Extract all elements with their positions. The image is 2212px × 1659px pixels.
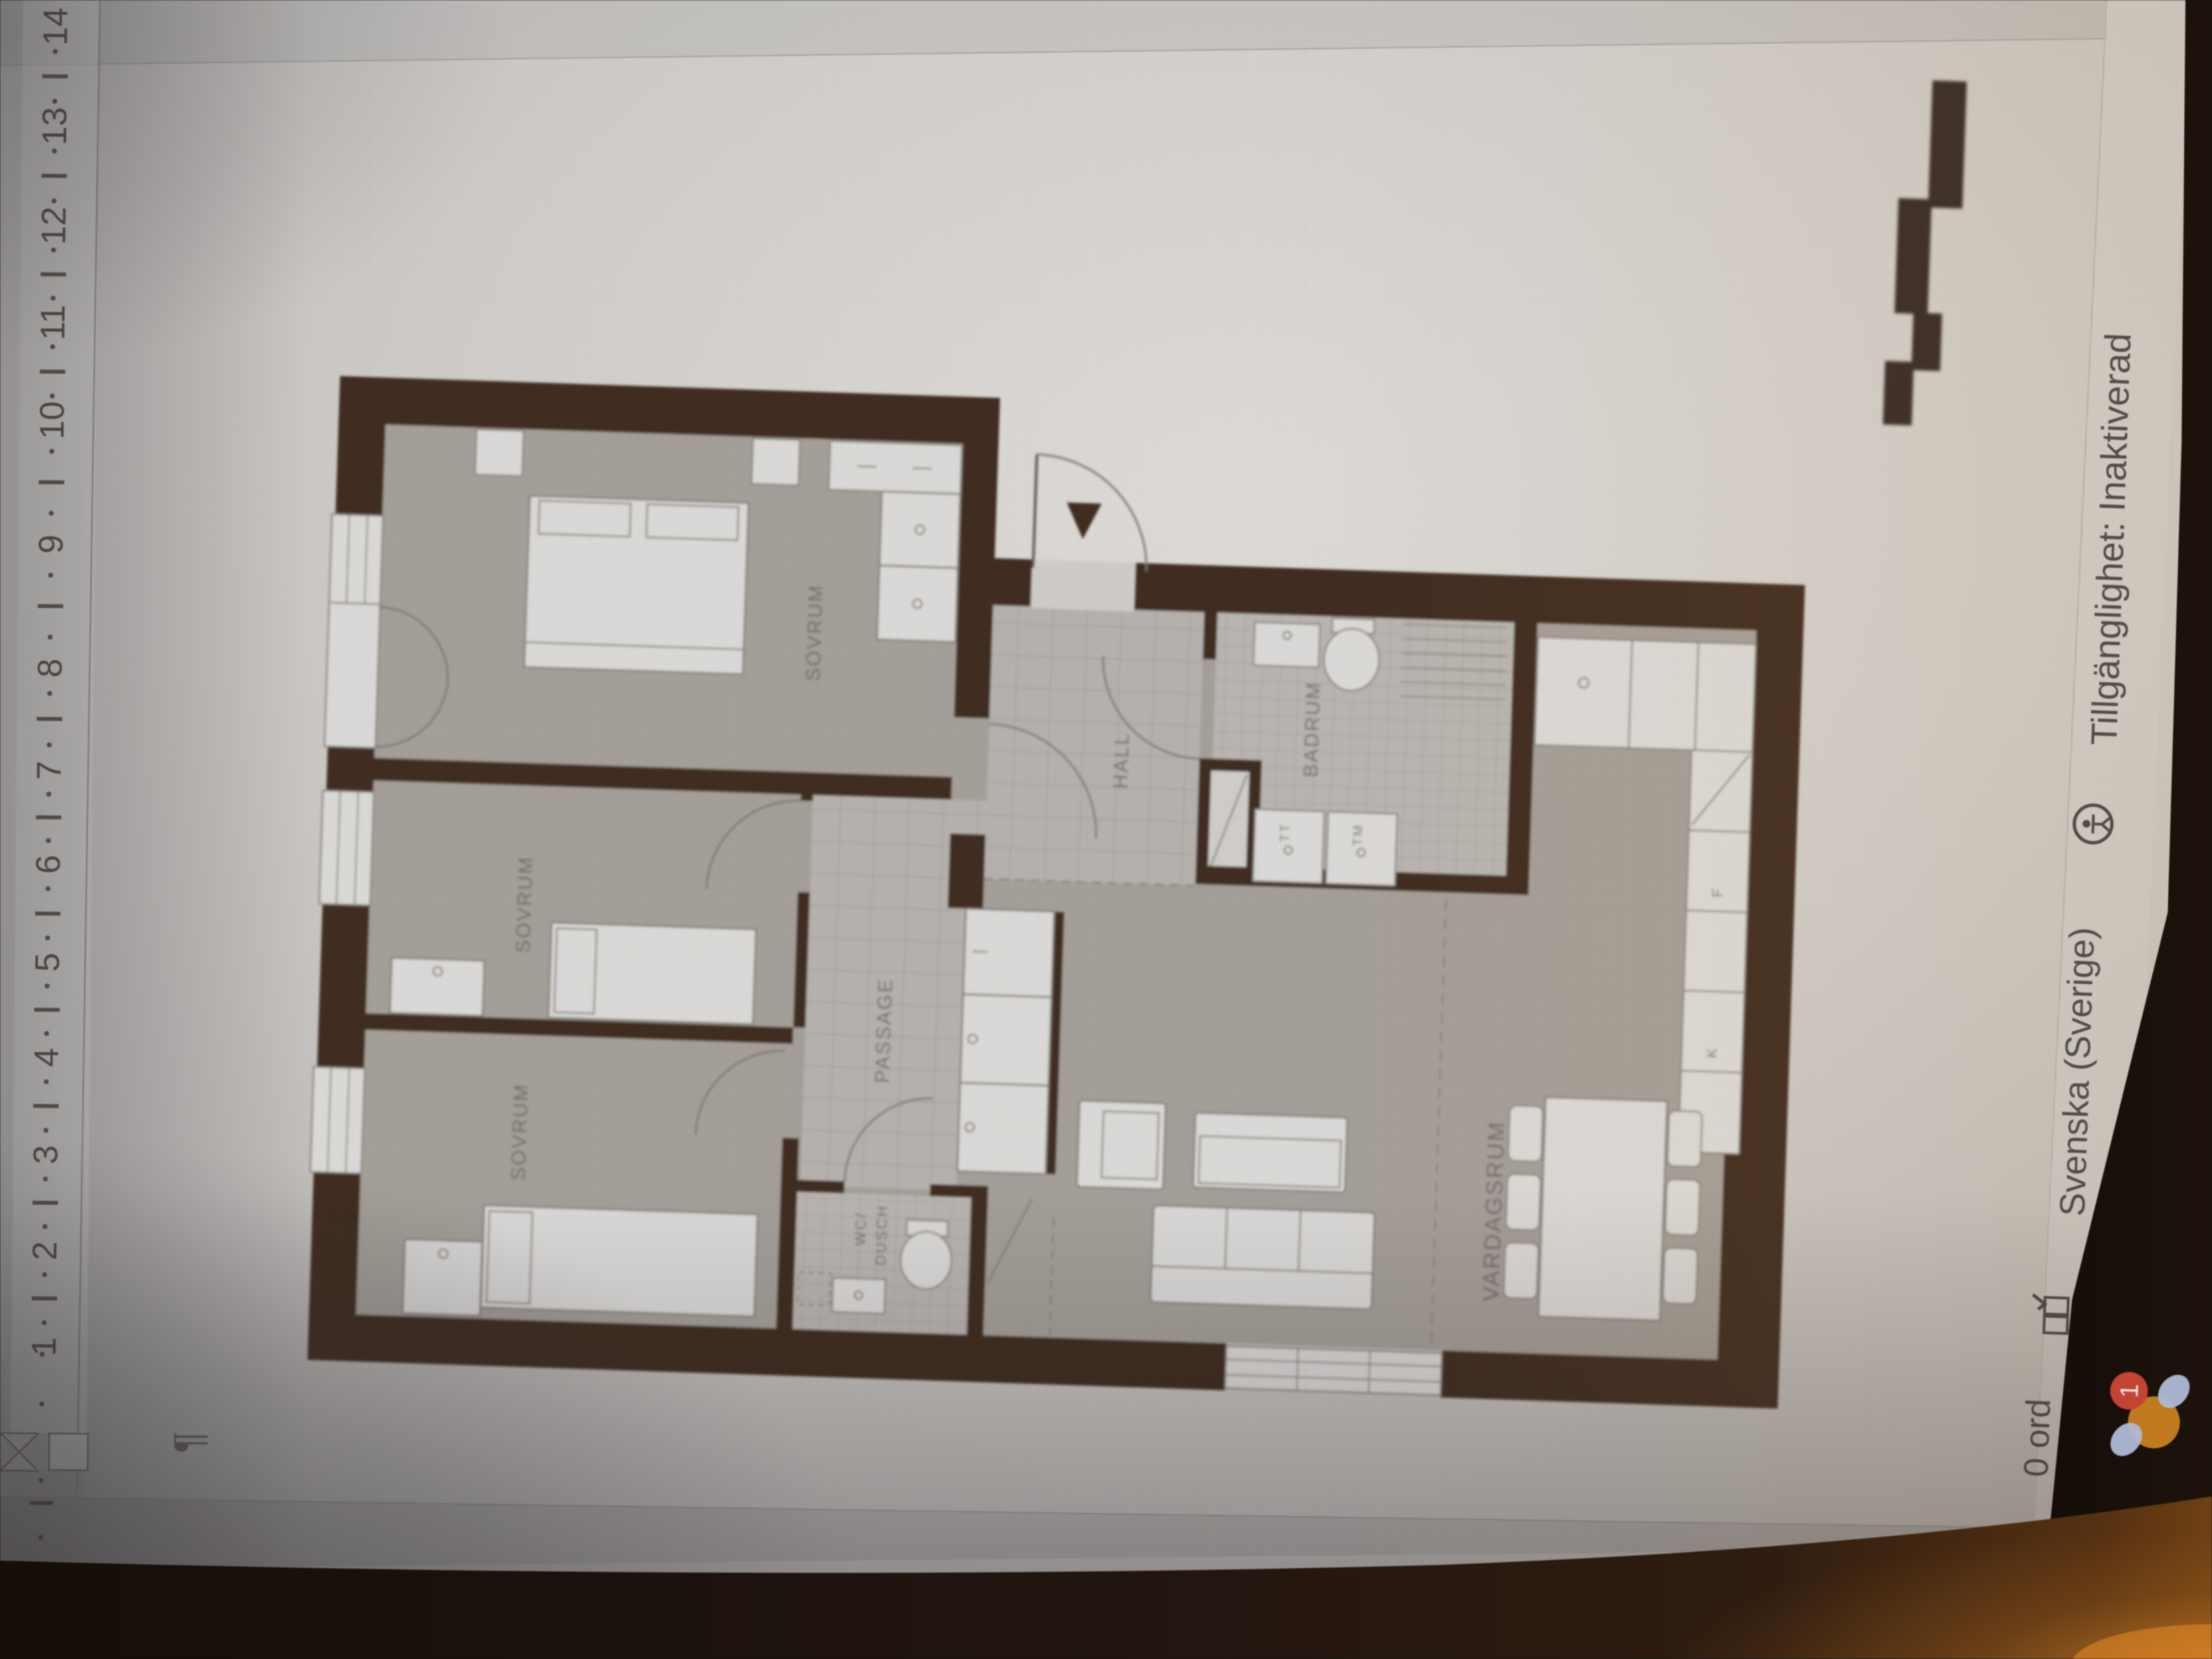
svg-text:1: 1: [2115, 1383, 2144, 1398]
